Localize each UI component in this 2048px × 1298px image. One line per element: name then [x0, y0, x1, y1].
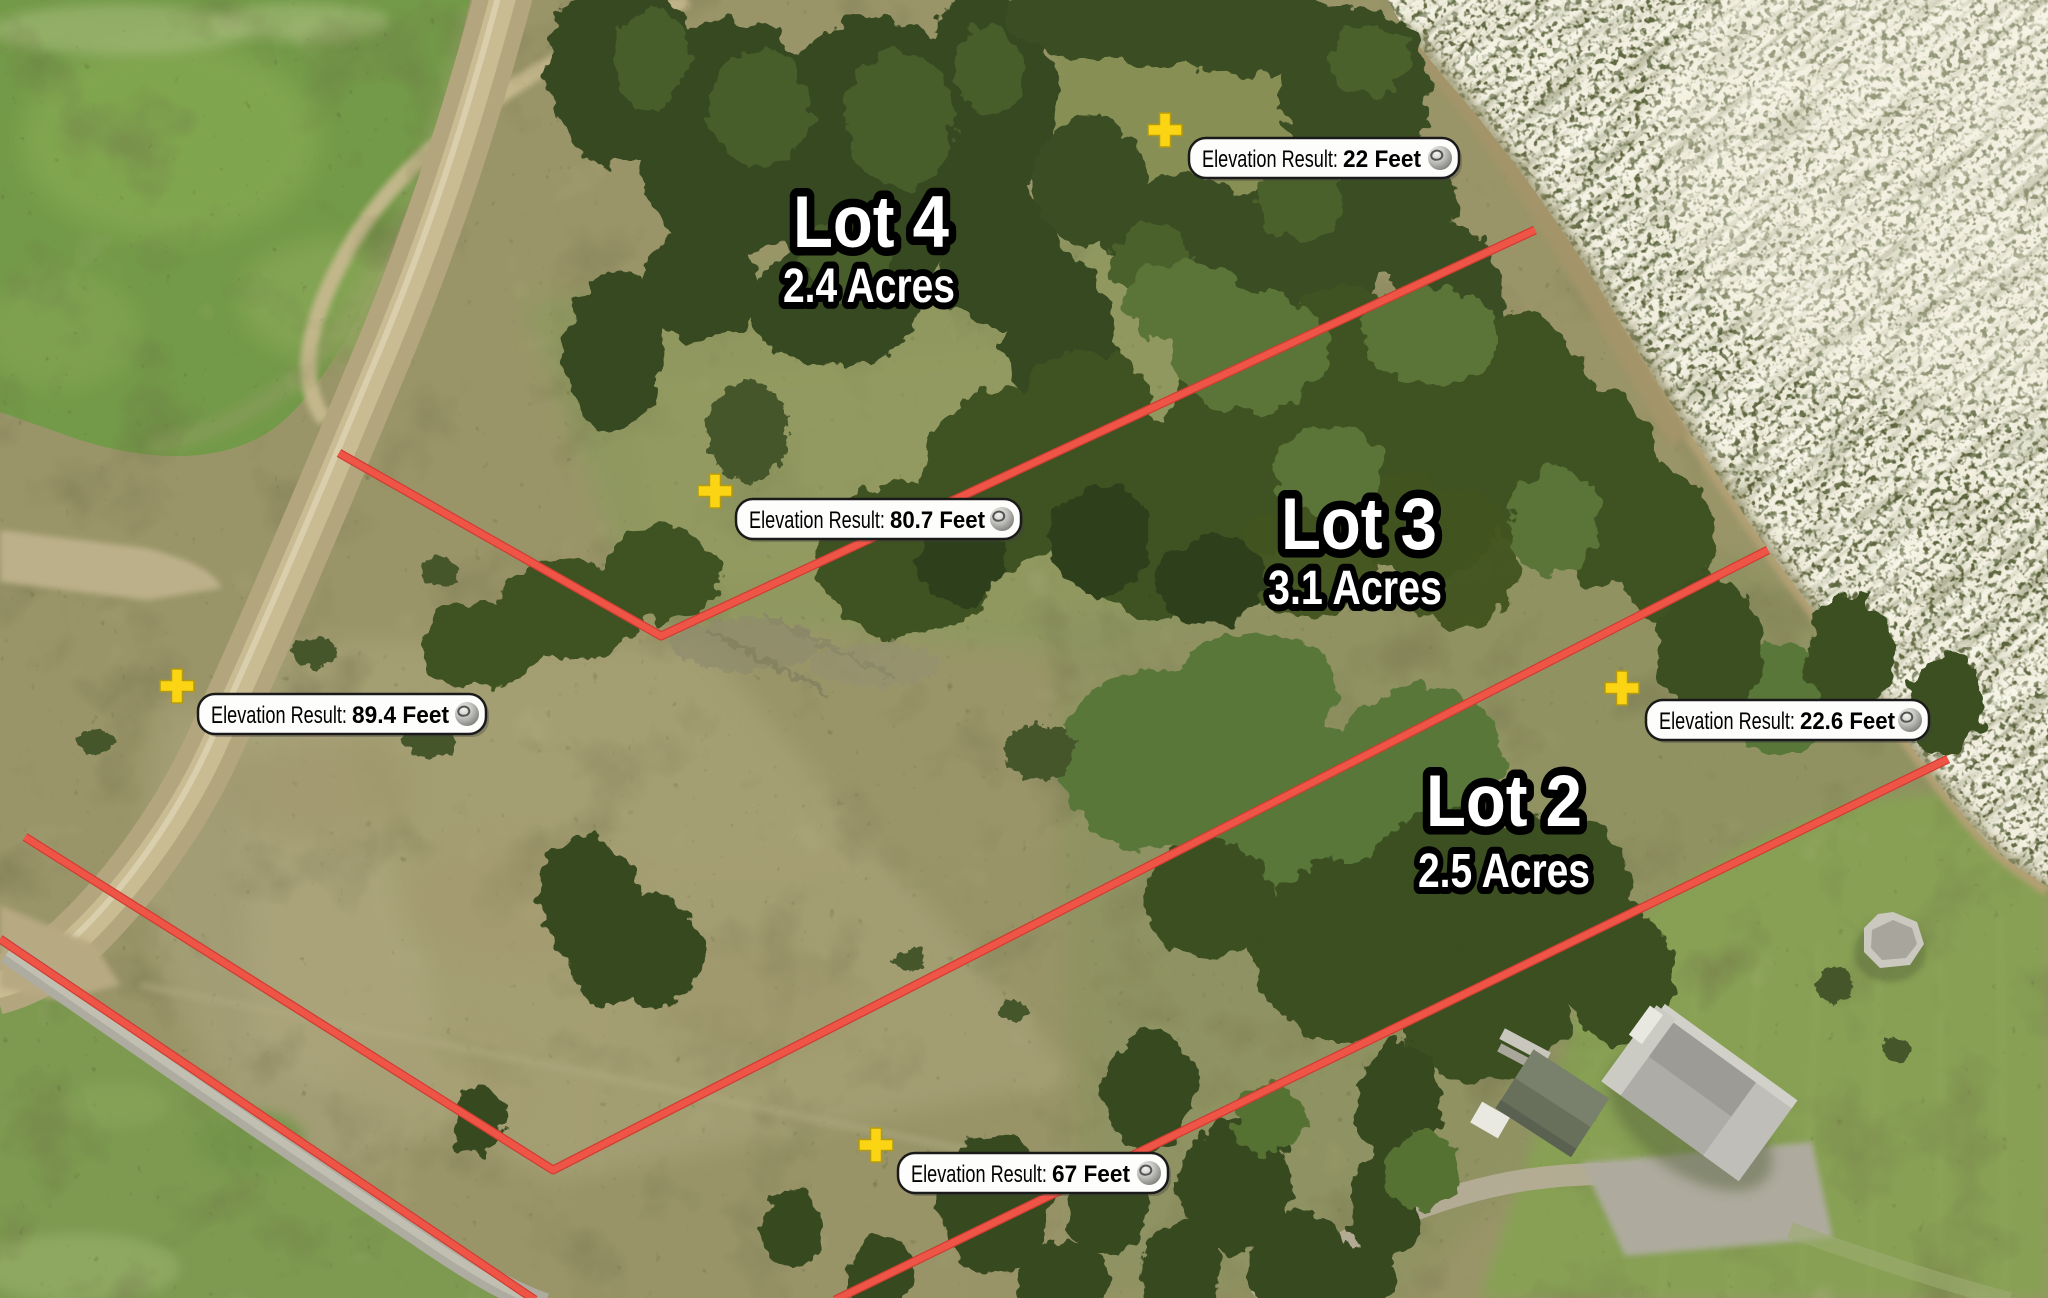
svg-text:Elevation Result: 89.4 Feet: Elevation Result: 89.4 Feet [211, 702, 449, 729]
svg-text:2.5 Acres: 2.5 Acres [1418, 845, 1590, 898]
svg-text:Lot 4: Lot 4 [793, 182, 949, 263]
svg-text:3.1 Acres: 3.1 Acres [1268, 562, 1442, 615]
svg-text:Elevation Result: 80.7 Feet: Elevation Result: 80.7 Feet [749, 507, 985, 534]
svg-text:2.4 Acres: 2.4 Acres [783, 260, 955, 313]
svg-text:Lot 2: Lot 2 [1426, 761, 1582, 842]
svg-text:Elevation Result: 22 Feet: Elevation Result: 22 Feet [1202, 146, 1421, 173]
svg-text:Lot 3: Lot 3 [1281, 484, 1437, 565]
svg-text:Elevation Result: 22.6 Feet: Elevation Result: 22.6 Feet [1659, 708, 1895, 735]
svg-text:Elevation Result: 67 Feet: Elevation Result: 67 Feet [911, 1161, 1130, 1188]
